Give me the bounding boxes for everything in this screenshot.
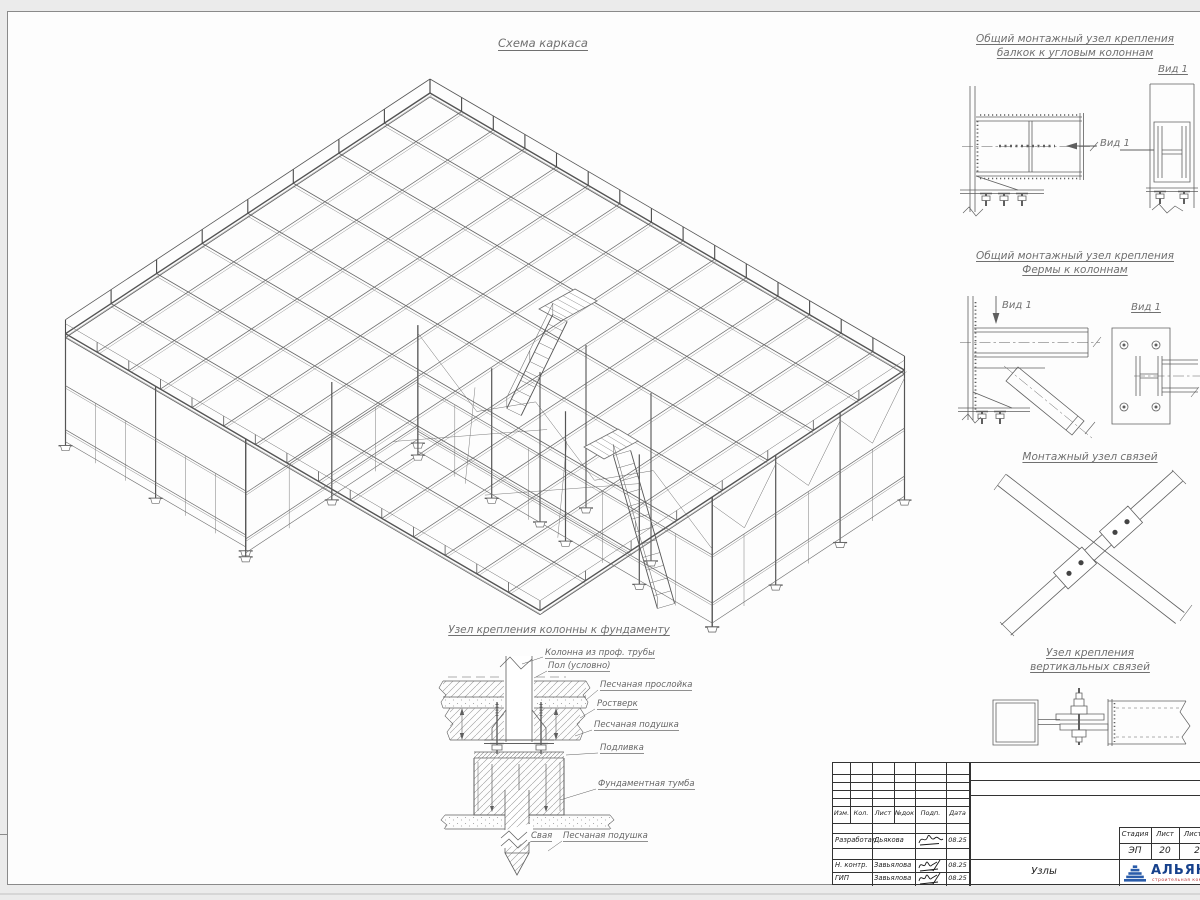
foundation-detail-drawing [439, 656, 614, 875]
label-column-tube: Колонна из проф. трубы [545, 648, 655, 659]
label-pile: Свая [531, 831, 552, 842]
label-sand-cushion: Песчаная подушка [594, 720, 679, 731]
tb-sheet-title: Узлы [969, 866, 1119, 877]
tb-role-checker: Н. контр. [835, 861, 873, 869]
detail2-arrow-label: Вид 1 [1002, 300, 1032, 311]
label-sand-cushion-2: Песчаная подушка [563, 831, 648, 842]
tb-role-developer: Разработал [835, 836, 873, 844]
title-block: Изм. Кол. Лист №док Подп. Дата Разработа… [832, 762, 1200, 885]
detail1-title: Общий монтажный узел креплениябалкок к у… [950, 32, 1200, 60]
tb-col-kol: Кол. [850, 809, 872, 817]
tb-col-data: Дата [946, 809, 969, 817]
tb-date-checker: 08.25 [946, 861, 969, 869]
tb-name-developer: Дьякова [874, 836, 915, 844]
tb-stage-label: Стадия [1119, 830, 1151, 838]
tb-col-podp: Подп. [915, 809, 946, 817]
tb-sheet-value: 20 [1151, 846, 1179, 856]
signature-developer [917, 833, 945, 846]
detail-corner-beam-drawing [960, 84, 1198, 216]
tb-role-gip: ГИП [835, 874, 873, 882]
detail4-title: Узел креплениявертикальных связей [985, 646, 1195, 674]
detail2-title: Общий монтажный узел крепленияФермы к ко… [950, 249, 1200, 277]
tb-name-gip: Завьялова [874, 874, 915, 882]
detail2-view-label: Вид 1 [1118, 302, 1174, 313]
detail1-arrow-label: Вид 1 [1100, 138, 1130, 149]
company-logo-icon [1123, 861, 1147, 883]
frame-isometric-drawing [59, 79, 912, 632]
label-foundation-block: Фундаментная тумба [598, 779, 695, 790]
detail-vertical-braces-drawing [993, 688, 1190, 746]
blueprint-sheet-page: { "main_view": { "title": "Схема каркаса… [0, 0, 1200, 900]
label-grout: Подливка [600, 743, 644, 754]
label-floor: Пол (условно) [548, 661, 610, 672]
company-name: АЛЬЯНС [1151, 863, 1200, 878]
detail-truss-column-drawing [958, 296, 1200, 438]
tb-date-developer: 08.25 [946, 836, 969, 844]
foundation-title: Узел крепления колонны к фундаменту [424, 623, 694, 637]
label-grillage: Ростверк [597, 699, 638, 710]
tb-stage-value: ЭП [1119, 846, 1151, 856]
company-tagline: строительная компания [1152, 878, 1200, 883]
tb-name-checker: Завьялова [874, 861, 915, 869]
tb-col-izm: Изм. [833, 809, 850, 817]
detail1-view-label: Вид 1 [1145, 64, 1200, 75]
label-sand-layer: Песчаная прослойка [600, 680, 692, 691]
detail-braces-drawing [994, 470, 1192, 636]
detail3-title: Монтажный узел связей [980, 450, 1200, 464]
tb-col-ndok: №док [894, 809, 915, 817]
signature-gip [917, 872, 945, 885]
tb-date-gip: 08.25 [946, 874, 969, 882]
tb-col-list: Лист [872, 809, 894, 817]
tb-total-value: 2 [1179, 846, 1200, 856]
tb-total-label: Листов [1179, 830, 1200, 838]
tb-sheet-label: Лист [1151, 830, 1179, 838]
main-view-title: Схема каркаса [468, 36, 618, 50]
signature-checker [917, 859, 945, 872]
